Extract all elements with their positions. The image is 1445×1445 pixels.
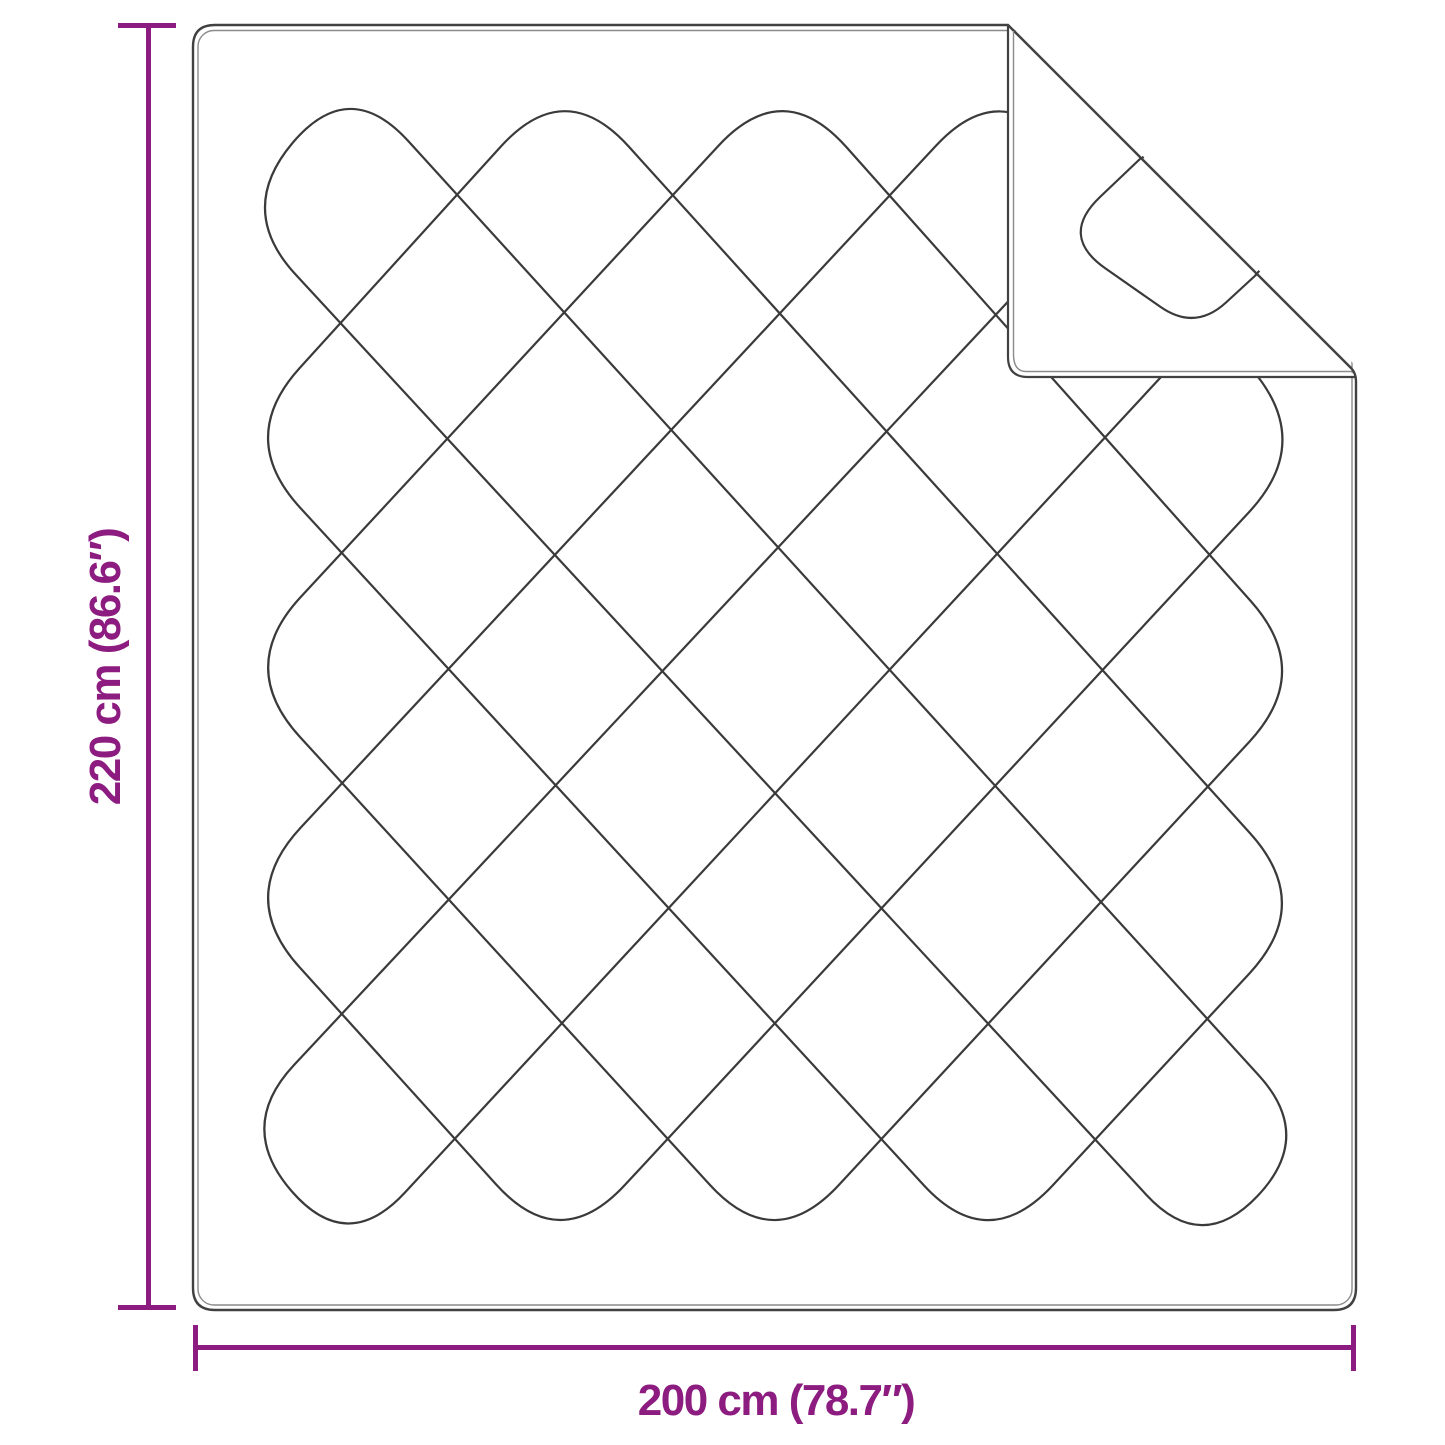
width-dimension-label: 200 cm (78.7″) bbox=[638, 1376, 914, 1426]
height-dimension-cap-bottom bbox=[118, 1305, 176, 1310]
blanket-illustration bbox=[0, 0, 1445, 1445]
width-dimension-cap-left bbox=[193, 1325, 198, 1371]
product-dimension-diagram: 220 cm (86.6″) 200 cm (78.7″) bbox=[0, 0, 1445, 1445]
height-dimension-label: 220 cm (86.6″) bbox=[81, 529, 131, 805]
height-dimension-line bbox=[146, 23, 151, 1310]
height-dimension-cap-top bbox=[118, 23, 176, 28]
width-dimension-cap-right bbox=[1351, 1325, 1356, 1371]
width-dimension-line bbox=[196, 1345, 1354, 1350]
